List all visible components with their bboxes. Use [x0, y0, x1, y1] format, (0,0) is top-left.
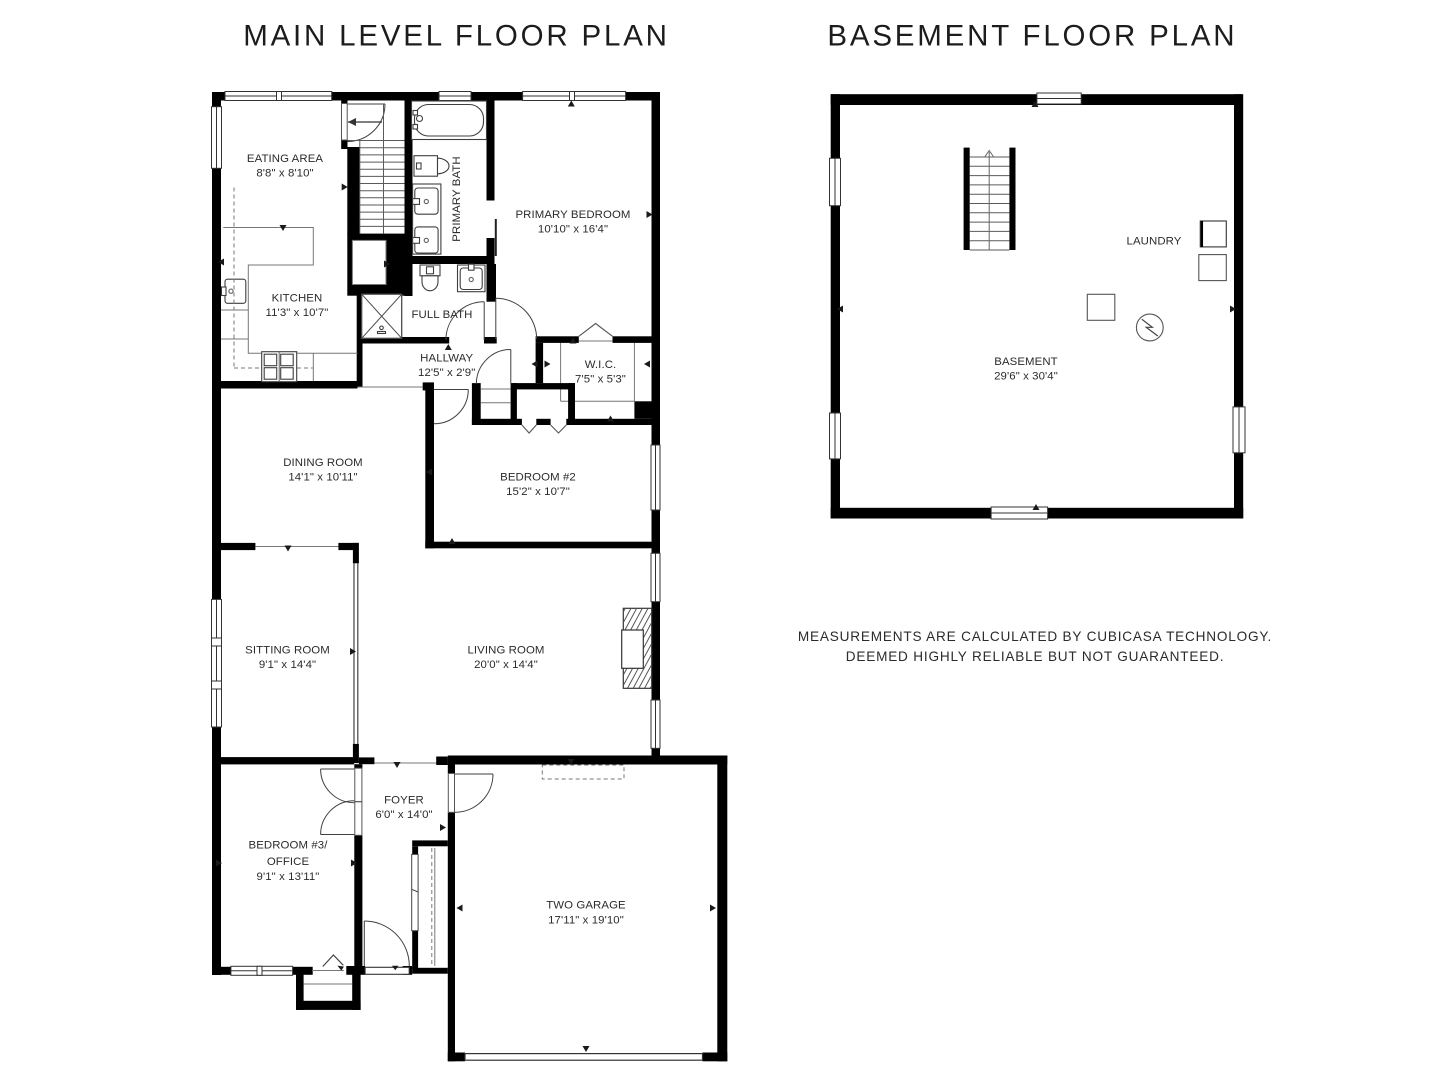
svg-text:LIVING ROOM: LIVING ROOM [467, 645, 544, 657]
svg-text:OFFICE: OFFICE [267, 856, 310, 868]
svg-text:PRIMARY BATH: PRIMARY BATH [451, 156, 463, 241]
svg-text:14'1" x 10'11": 14'1" x 10'11" [288, 472, 357, 484]
svg-text:W.I.C.: W.I.C. [585, 359, 617, 371]
svg-text:MEASUREMENTS ARE CALCULATED BY: MEASUREMENTS ARE CALCULATED BY CUBICASA … [798, 629, 1272, 644]
svg-text:EATING AREA: EATING AREA [247, 153, 324, 165]
svg-text:8'8" x 8'10": 8'8" x 8'10" [256, 168, 313, 180]
svg-text:BEDROOM #3/: BEDROOM #3/ [249, 840, 329, 852]
svg-text:TWO GARAGE: TWO GARAGE [546, 900, 626, 912]
svg-text:LAUNDRY: LAUNDRY [1127, 236, 1182, 248]
svg-text:9'1" x 14'4": 9'1" x 14'4" [259, 659, 316, 671]
svg-text:BEDROOM #2: BEDROOM #2 [500, 472, 576, 484]
svg-text:11'3" x 10'7": 11'3" x 10'7" [266, 307, 329, 319]
svg-text:17'11" x 19'10": 17'11" x 19'10" [548, 915, 624, 927]
svg-text:9'1" x 13'11": 9'1" x 13'11" [257, 871, 320, 883]
svg-text:10'10" x 16'4": 10'10" x 16'4" [538, 224, 608, 236]
svg-text:PRIMARY BEDROOM: PRIMARY BEDROOM [515, 209, 630, 221]
svg-text:7'5" x 5'3": 7'5" x 5'3" [575, 374, 626, 386]
svg-text:KITCHEN: KITCHEN [272, 293, 323, 305]
svg-text:20'0" x 14'4": 20'0" x 14'4" [474, 659, 538, 671]
svg-text:SITTING ROOM: SITTING ROOM [245, 645, 330, 657]
svg-text:HALLWAY: HALLWAY [420, 353, 473, 365]
svg-text:29'6" x 30'4": 29'6" x 30'4" [994, 371, 1058, 383]
svg-text:DINING ROOM: DINING ROOM [283, 457, 363, 469]
svg-text:BASEMENT: BASEMENT [994, 356, 1057, 368]
svg-text:12'5" x 2'9": 12'5" x 2'9" [418, 367, 475, 379]
svg-text:BASEMENT FLOOR PLAN: BASEMENT FLOOR PLAN [827, 20, 1237, 53]
svg-text:DEEMED HIGHLY RELIABLE BUT NOT: DEEMED HIGHLY RELIABLE BUT NOT GUARANTEE… [846, 649, 1225, 664]
svg-text:MAIN LEVEL FLOOR PLAN: MAIN LEVEL FLOOR PLAN [243, 20, 670, 53]
svg-text:6'0" x 14'0": 6'0" x 14'0" [375, 809, 432, 821]
svg-text:FOYER: FOYER [384, 795, 424, 807]
svg-text:15'2" x 10'7": 15'2" x 10'7" [506, 486, 570, 498]
svg-text:FULL BATH: FULL BATH [411, 309, 472, 321]
